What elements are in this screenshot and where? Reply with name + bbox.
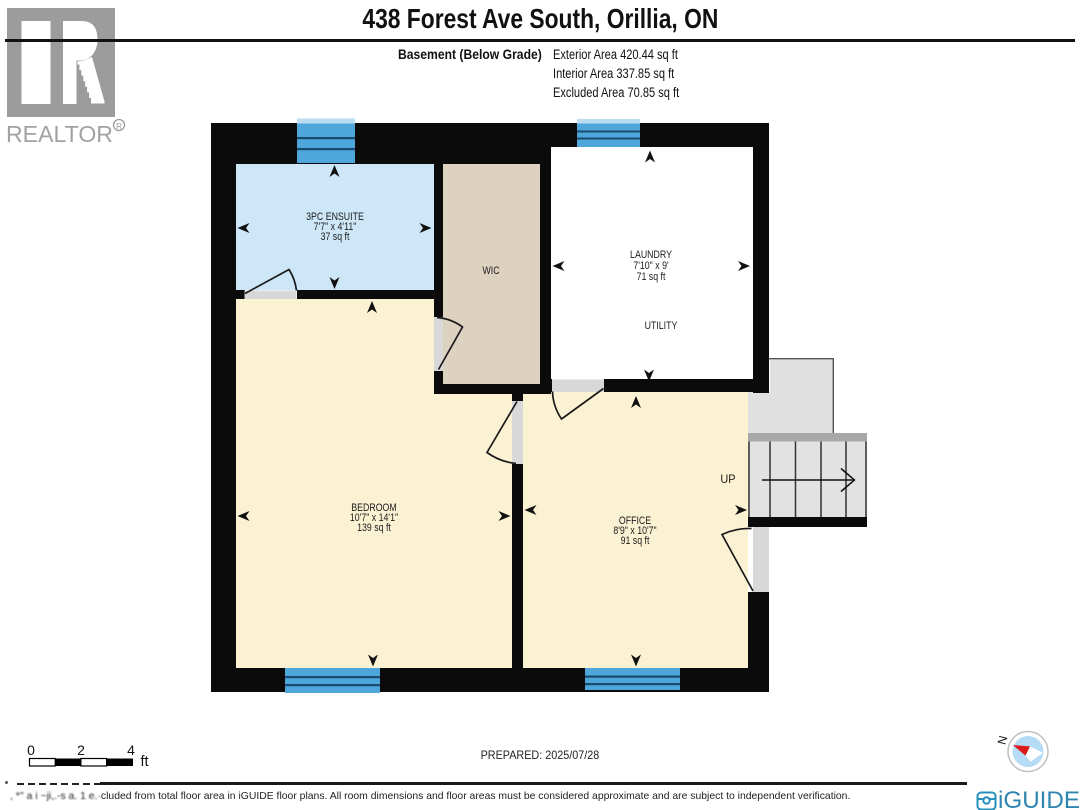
- svg-text:iGUIDE: iGUIDE: [998, 787, 1080, 810]
- svg-text:0: 0: [27, 742, 35, 758]
- svg-text:ft: ft: [141, 754, 149, 770]
- svg-text:2: 2: [77, 742, 85, 758]
- svg-text:4: 4: [127, 742, 135, 758]
- svg-text:N: N: [995, 734, 1011, 746]
